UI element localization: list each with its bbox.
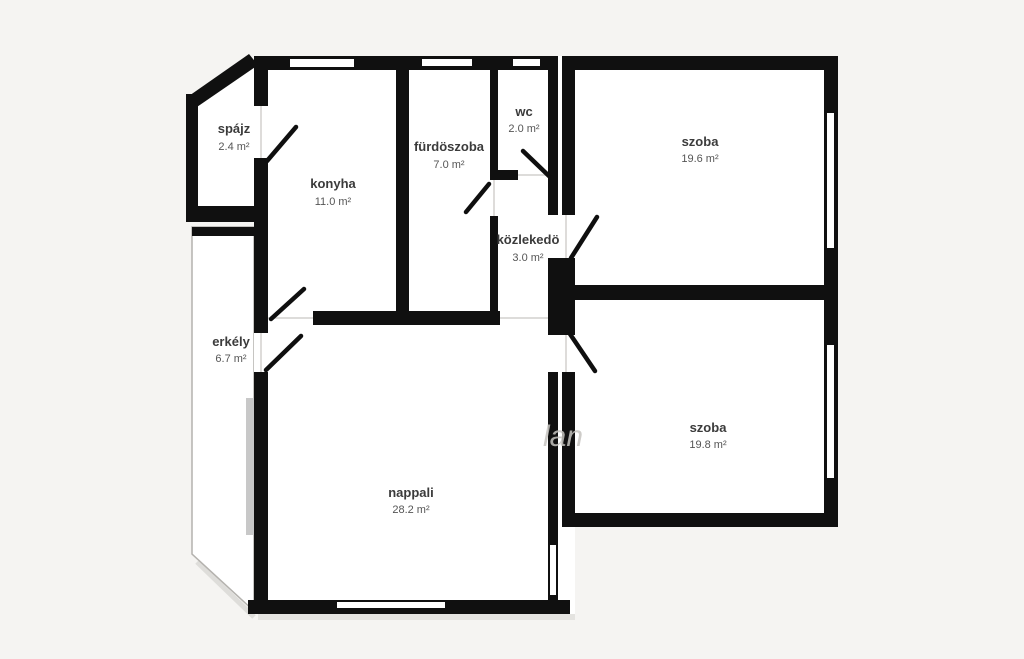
- balcony-window-glass: [246, 398, 254, 535]
- szoba-felso-name: szoba: [682, 134, 720, 149]
- konyha-west-wall-lower: [254, 158, 268, 333]
- spajz-bottom-wall: [186, 206, 254, 222]
- furdoszoba-area: 7.0 m²: [433, 159, 465, 171]
- szoba-also-name: szoba: [690, 420, 728, 435]
- szoba-felso-window: [827, 113, 834, 248]
- erkely-name: erkély: [212, 334, 250, 349]
- floor-plan: spájz 2.4 m² konyha 11.0 m² fürdöszoba 7…: [0, 0, 1024, 659]
- floor-plan-canvas: spájz 2.4 m² konyha 11.0 m² fürdöszoba 7…: [0, 0, 1024, 659]
- szoba-also-window: [827, 345, 834, 478]
- wc-bottom-wall-stub: [497, 170, 518, 180]
- konyha-window: [290, 59, 354, 67]
- konyha-furdoszoba-divider-wall: [396, 70, 409, 318]
- spajz-area: 2.4 m²: [218, 141, 250, 153]
- balcony-erkely-area: [192, 227, 254, 611]
- kozlekedo-name: közlekedö: [497, 232, 560, 247]
- erkely-area: 6.7 m²: [215, 353, 247, 365]
- szoba-felso-west-wall: [562, 70, 575, 215]
- kozlekedo-area: 3.0 m²: [512, 252, 544, 264]
- nappali-area: 28.2 m²: [392, 504, 430, 516]
- furdoszoba-name: fürdöszoba: [414, 139, 485, 154]
- wc-area: 2.0 m²: [508, 123, 540, 135]
- nappali-east-window: [550, 545, 556, 595]
- szoba-also-area: 19.8 m²: [689, 439, 727, 451]
- top-wall-right: [562, 56, 838, 70]
- nappali-name: nappali: [388, 485, 434, 500]
- konyha-west-wall-upper: [254, 70, 268, 106]
- konyha-name: konyha: [310, 176, 356, 191]
- wc-window: [513, 59, 540, 66]
- konyha-area: 11.0 m²: [315, 196, 352, 208]
- spajz-name: spájz: [218, 121, 251, 136]
- corridor-east-wall-upper: [548, 70, 558, 215]
- mid-horizontal-wall: [313, 311, 500, 325]
- wc-name: wc: [514, 104, 532, 119]
- watermark-text: lan: [543, 420, 583, 453]
- nappali-south-window: [337, 602, 445, 608]
- szoba-divider-wall: [562, 285, 838, 300]
- szoba-bottom-wall: [562, 513, 838, 527]
- furdoszoba-east-wall-upper: [490, 70, 498, 180]
- nappali-west-wall: [254, 372, 268, 614]
- erkely-top-wall: [192, 227, 254, 236]
- corridor-east-wall-mid: [548, 258, 575, 335]
- szoba-felso-area: 19.6 m²: [681, 153, 719, 165]
- furdoszoba-window: [422, 59, 472, 66]
- spajz-left-wall: [186, 94, 198, 216]
- bottom-wall-shadow: [258, 614, 575, 620]
